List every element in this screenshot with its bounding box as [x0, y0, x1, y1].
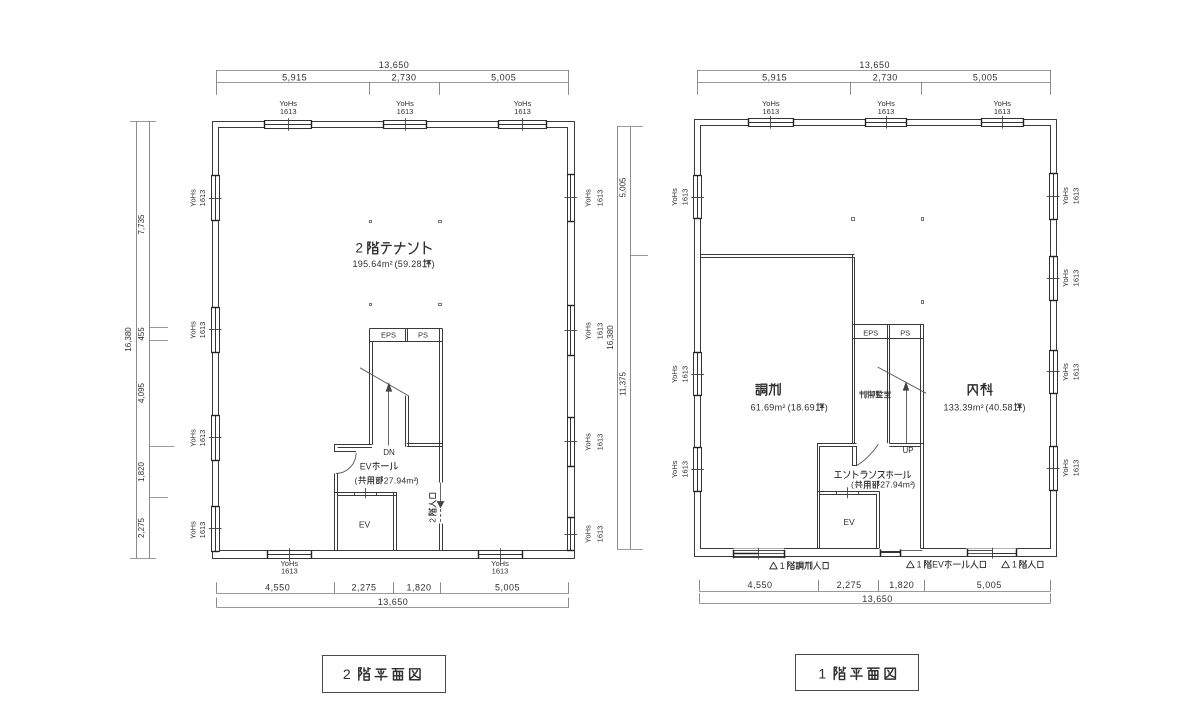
svg-text:YoHs: YoHs — [1061, 363, 1070, 381]
svg-text:1613: 1613 — [1072, 364, 1081, 381]
svg-text:YoHs: YoHs — [189, 521, 198, 539]
svg-text:(40.58: (40.58 — [986, 402, 1013, 412]
svg-text:1,820: 1,820 — [889, 580, 914, 590]
svg-text:195.64m²: 195.64m² — [353, 259, 393, 269]
svg-text:YoHs: YoHs — [1061, 187, 1070, 205]
svg-text:1613: 1613 — [1072, 188, 1081, 205]
svg-text:5,915: 5,915 — [282, 72, 307, 82]
svg-text:1613: 1613 — [994, 107, 1011, 116]
svg-text:EPS: EPS — [863, 328, 878, 337]
svg-text:27.94m²: 27.94m² — [384, 475, 417, 485]
svg-text:YoHs: YoHs — [1061, 269, 1070, 287]
svg-text:1613: 1613 — [681, 189, 690, 206]
svg-text:YoHs: YoHs — [670, 460, 679, 478]
svg-text:YoHs: YoHs — [670, 365, 679, 383]
svg-text:5,915: 5,915 — [762, 72, 787, 82]
svg-text:(: ( — [851, 480, 854, 490]
svg-text:YoHs: YoHs — [583, 525, 592, 543]
svg-text:1613: 1613 — [595, 190, 604, 207]
svg-text:455: 455 — [137, 327, 146, 341]
svg-text:(59.28: (59.28 — [395, 259, 422, 269]
svg-text:5,005: 5,005 — [619, 177, 628, 198]
svg-text:2: 2 — [356, 241, 364, 256]
svg-text:4,550: 4,550 — [747, 580, 772, 590]
svg-text:(: ( — [355, 475, 358, 485]
svg-text:133.39m²: 133.39m² — [944, 402, 984, 412]
svg-text:2,275: 2,275 — [351, 583, 376, 593]
svg-text:1: 1 — [1012, 560, 1017, 570]
svg-text:EV: EV — [360, 461, 372, 471]
svg-text:7,735: 7,735 — [137, 214, 146, 235]
svg-text:1613: 1613 — [762, 107, 779, 116]
svg-text:1613: 1613 — [280, 107, 297, 116]
svg-text:YoHs: YoHs — [583, 322, 592, 340]
svg-text:11,375: 11,375 — [619, 372, 628, 396]
svg-text:1,820: 1,820 — [406, 583, 431, 593]
svg-text:2: 2 — [343, 666, 351, 682]
svg-text:5,005: 5,005 — [973, 72, 998, 82]
svg-text:1613: 1613 — [281, 567, 298, 576]
svg-text:EPS: EPS — [381, 331, 396, 340]
svg-text:YoHs: YoHs — [670, 188, 679, 206]
svg-text:2,730: 2,730 — [873, 72, 898, 82]
svg-text:YoHs: YoHs — [189, 429, 198, 447]
svg-text:): ) — [912, 480, 915, 490]
svg-text:16,380: 16,380 — [606, 325, 615, 350]
svg-text:): ) — [825, 402, 828, 412]
svg-text:1613: 1613 — [1072, 460, 1081, 477]
svg-text:UP: UP — [902, 446, 913, 455]
svg-text:1: 1 — [780, 561, 785, 571]
svg-text:1613: 1613 — [397, 107, 414, 116]
svg-text:1613: 1613 — [595, 526, 604, 543]
svg-text:1613: 1613 — [681, 366, 690, 383]
svg-text:61.69m²: 61.69m² — [751, 402, 786, 412]
svg-text:5,005: 5,005 — [495, 583, 520, 593]
svg-text:13,650: 13,650 — [379, 60, 410, 70]
svg-text:PS: PS — [418, 331, 428, 340]
svg-text:(18.69: (18.69 — [788, 402, 815, 412]
svg-text:13,650: 13,650 — [862, 594, 893, 604]
svg-text:1613: 1613 — [198, 430, 207, 447]
svg-text:1,820: 1,820 — [137, 461, 146, 482]
svg-text:1613: 1613 — [1072, 270, 1081, 287]
svg-text:1613: 1613 — [198, 522, 207, 539]
svg-text:YoHs: YoHs — [583, 189, 592, 207]
svg-text:2,275: 2,275 — [137, 517, 146, 538]
svg-text:2,275: 2,275 — [837, 580, 862, 590]
svg-text:1613: 1613 — [595, 323, 604, 340]
svg-text:1613: 1613 — [514, 107, 531, 116]
svg-text:16,380: 16,380 — [124, 327, 133, 352]
svg-text:1613: 1613 — [878, 107, 895, 116]
svg-text:PS: PS — [900, 328, 910, 337]
svg-text:27.94m²: 27.94m² — [880, 480, 913, 490]
svg-text:): ) — [1023, 402, 1026, 412]
svg-text:YoHs: YoHs — [583, 433, 592, 451]
svg-text:13,650: 13,650 — [859, 60, 890, 70]
svg-text:1613: 1613 — [595, 434, 604, 451]
svg-text:1613: 1613 — [492, 567, 509, 576]
svg-text:1613: 1613 — [198, 322, 207, 339]
svg-text:1: 1 — [917, 560, 922, 570]
svg-text:YoHs: YoHs — [1061, 459, 1070, 477]
svg-text:5,005: 5,005 — [491, 72, 516, 82]
svg-text:4,550: 4,550 — [265, 583, 290, 593]
svg-text:2: 2 — [429, 518, 438, 523]
svg-text:5,005: 5,005 — [977, 580, 1002, 590]
svg-text:): ) — [416, 475, 419, 485]
svg-text:YoHs: YoHs — [189, 189, 198, 207]
svg-text:13,650: 13,650 — [378, 597, 409, 607]
svg-text:2,730: 2,730 — [391, 72, 416, 82]
svg-text:EV: EV — [359, 519, 371, 529]
svg-text:DN: DN — [383, 448, 395, 457]
svg-text:): ) — [432, 259, 435, 269]
svg-text:EV: EV — [932, 560, 944, 570]
svg-text:YoHs: YoHs — [189, 321, 198, 339]
svg-text:1613: 1613 — [681, 461, 690, 478]
svg-text:1613: 1613 — [198, 190, 207, 207]
svg-text:1: 1 — [818, 665, 826, 681]
svg-text:EV: EV — [843, 517, 855, 527]
svg-text:4,095: 4,095 — [137, 382, 146, 403]
